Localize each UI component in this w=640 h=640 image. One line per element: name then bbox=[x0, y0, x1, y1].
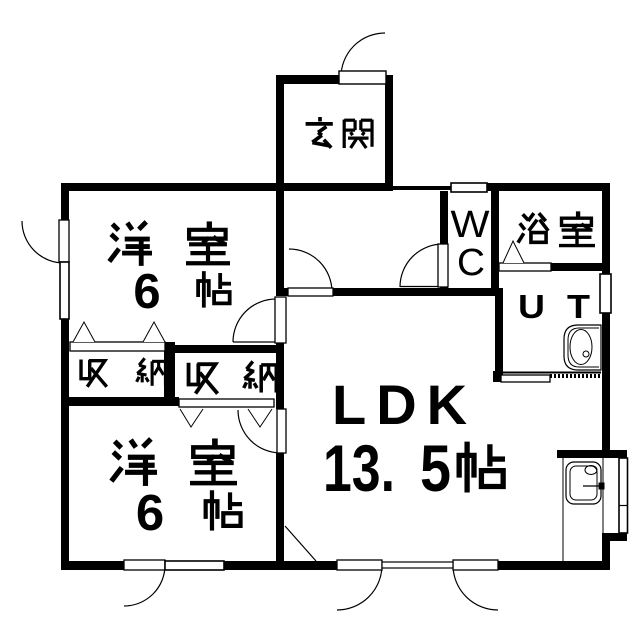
svg-text:5: 5 bbox=[420, 431, 451, 505]
svg-text:13.: 13. bbox=[323, 431, 395, 505]
svg-text:T: T bbox=[567, 288, 590, 325]
svg-text:W: W bbox=[451, 204, 490, 246]
svg-text:LDK: LDK bbox=[332, 373, 477, 436]
svg-text:6: 6 bbox=[133, 265, 160, 319]
svg-text:C: C bbox=[457, 242, 485, 284]
svg-text:6: 6 bbox=[136, 484, 164, 541]
svg-text:U: U bbox=[518, 288, 545, 325]
